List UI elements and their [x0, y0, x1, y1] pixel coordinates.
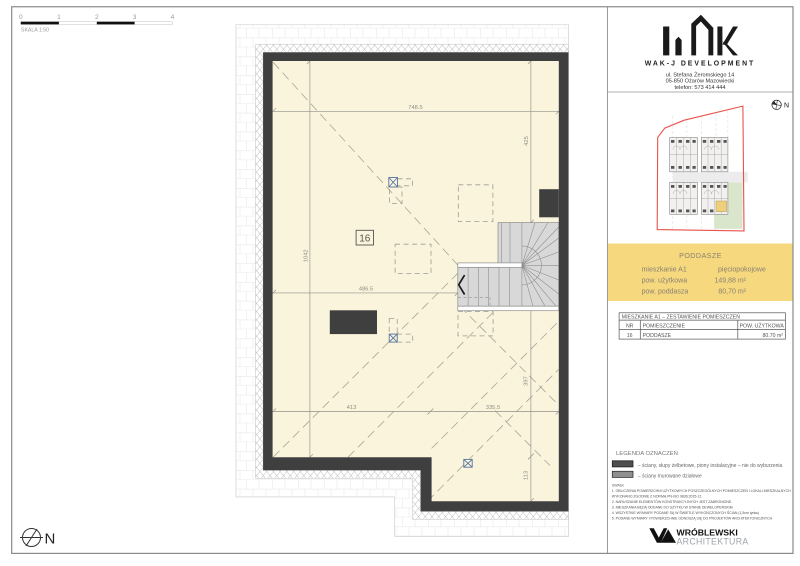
svg-text:4. WSZYSTKIE WYMIARY PODANE SĄ: 4. WSZYSTKIE WYMIARY PODANE SĄ W ŚWIETLE…	[612, 510, 759, 515]
svg-text:0: 0	[19, 14, 23, 21]
svg-text:80,70 m²: 80,70 m²	[718, 288, 746, 295]
svg-text:397: 397	[524, 376, 530, 386]
svg-text:113: 113	[523, 471, 529, 480]
svg-text:PODDASZE: PODDASZE	[679, 251, 722, 260]
svg-text:1. OBLICZENIA POWIERZCHNI UŻYT: 1. OBLICZENIA POWIERZCHNI UŻYTKOWYCH POS…	[612, 488, 791, 493]
svg-text:3: 3	[133, 14, 137, 21]
svg-text:N: N	[784, 103, 789, 110]
svg-text:pow. poddasza: pow. poddasza	[642, 288, 689, 295]
svg-text:UWAGI:: UWAGI:	[612, 484, 625, 488]
svg-text:pięciopokojowe: pięciopokojowe	[718, 267, 766, 274]
svg-text:149,88 m²: 149,88 m²	[714, 277, 746, 284]
svg-text:PODDASZE: PODDASZE	[643, 333, 672, 339]
svg-text:80.70 m²: 80.70 m²	[763, 333, 784, 339]
svg-text:16: 16	[359, 234, 371, 245]
svg-text:4: 4	[171, 14, 175, 21]
svg-text:LEGENDA OZNACZEŃ: LEGENDA OZNACZEŃ	[616, 450, 678, 457]
svg-text:pow. użytkowa: pow. użytkowa	[642, 277, 688, 284]
svg-text:SKALA 1:50: SKALA 1:50	[21, 28, 49, 34]
svg-text:413: 413	[347, 405, 357, 411]
svg-text:16: 16	[627, 333, 633, 339]
svg-text:POW. UŻYTKOWA: POW. UŻYTKOWA	[740, 323, 785, 330]
svg-text:WAK-J DEVELOPMENT: WAK-J DEVELOPMENT	[645, 60, 756, 67]
svg-text:5. PODANE WYMIARY I POWIERZCHN: 5. PODANE WYMIARY I POWIERZCHNIE ODNOSZĄ…	[612, 516, 773, 521]
svg-text:N: N	[45, 531, 56, 548]
svg-text:ARCHITEKTURA: ARCHITEKTURA	[677, 536, 749, 546]
svg-text:mieszkanie A1: mieszkanie A1	[642, 267, 687, 274]
svg-text:MIESZKANIE A1 – ZESTAWIENIE PO: MIESZKANIE A1 – ZESTAWIENIE POMIESZCZEŃ	[622, 313, 740, 320]
svg-text:3. MIESZKANIA BĘDĄ ODDANE DO U: 3. MIESZKANIA BĘDĄ ODDANE DO UŻYTKU W ST…	[612, 505, 733, 510]
svg-text:ul. Stefana Żeromskiego 14: ul. Stefana Żeromskiego 14	[666, 71, 734, 78]
svg-text:425: 425	[524, 136, 530, 146]
svg-text:2. NARUSZANIE ELEMENTÓW KONSTR: 2. NARUSZANIE ELEMENTÓW KONSTRUKCYJNYCH …	[612, 499, 732, 504]
svg-text:POMIESZCZENIE: POMIESZCZENIE	[643, 324, 686, 330]
svg-text:486.5: 486.5	[359, 286, 374, 292]
svg-text:335.5: 335.5	[486, 405, 501, 411]
svg-text:telefon: 573 414 444: telefon: 573 414 444	[674, 85, 725, 91]
svg-text:NR: NR	[626, 324, 634, 330]
svg-text:– ściany, słupy żelbetowe, pio: – ściany, słupy żelbetowe, piony instala…	[638, 463, 783, 469]
svg-text:– ściany murowane działowe: – ściany murowane działowe	[638, 473, 702, 479]
svg-text:748.5: 748.5	[408, 105, 423, 111]
svg-text:1042: 1042	[303, 249, 309, 262]
svg-text:05-850 Ożarów Mazowiecki: 05-850 Ożarów Mazowiecki	[666, 79, 735, 85]
svg-text:2: 2	[95, 14, 99, 21]
svg-text:WYKONANO ZGODNIE Z NORMĄ PN-IS: WYKONANO ZGODNIE Z NORMĄ PN-ISO 9836:201…	[612, 495, 702, 499]
svg-text:1: 1	[57, 14, 61, 21]
